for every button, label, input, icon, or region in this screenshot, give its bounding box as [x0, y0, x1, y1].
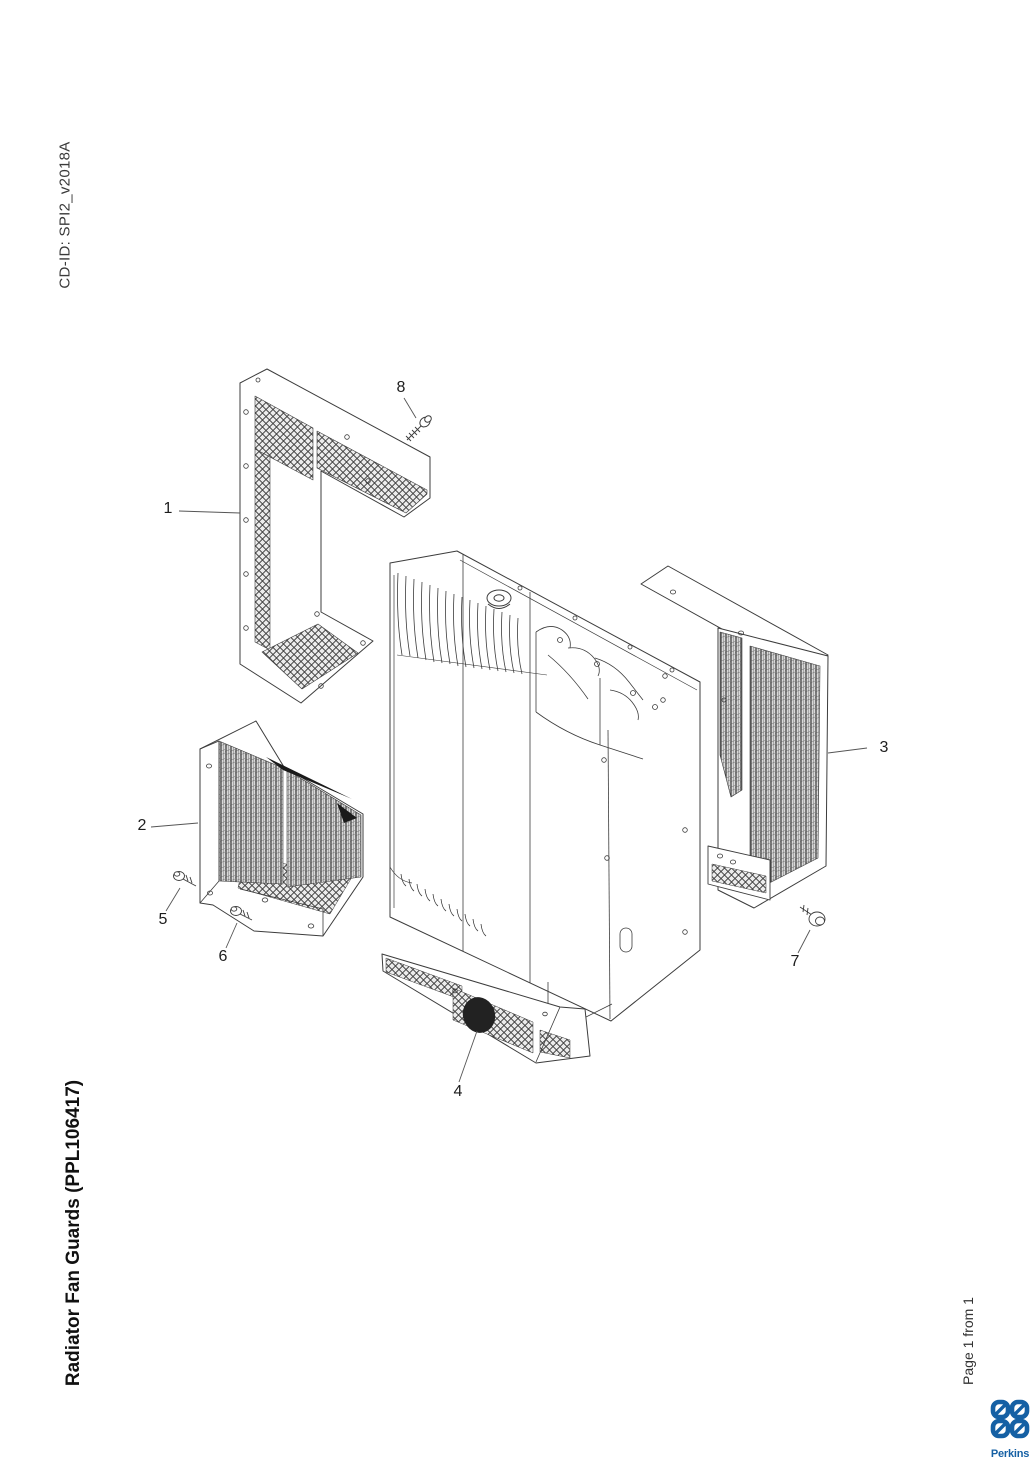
part-2-fan-guard — [200, 721, 363, 936]
diagram-drawing — [130, 340, 930, 1120]
cd-id-label: CD-ID: SPI2_v2018A — [57, 141, 74, 288]
page: CD-ID: SPI2_v2018A Radiator Fan Guards (… — [0, 0, 1033, 1461]
exploded-parts-diagram: 12345678 — [130, 340, 930, 1120]
document-title: Radiator Fan Guards (PPL106417) — [63, 1080, 85, 1386]
perkins-logo: Perkins — [986, 1398, 1033, 1460]
perkins-logo-icon — [986, 1398, 1033, 1444]
bolt-5 — [174, 872, 197, 887]
perkins-wordmark: Perkins — [986, 1448, 1033, 1460]
radiator-assembly — [390, 551, 700, 1021]
bolt-7 — [800, 905, 825, 926]
bolt-8 — [406, 414, 433, 441]
page-indicator: Page 1 from 1 — [960, 1297, 976, 1385]
